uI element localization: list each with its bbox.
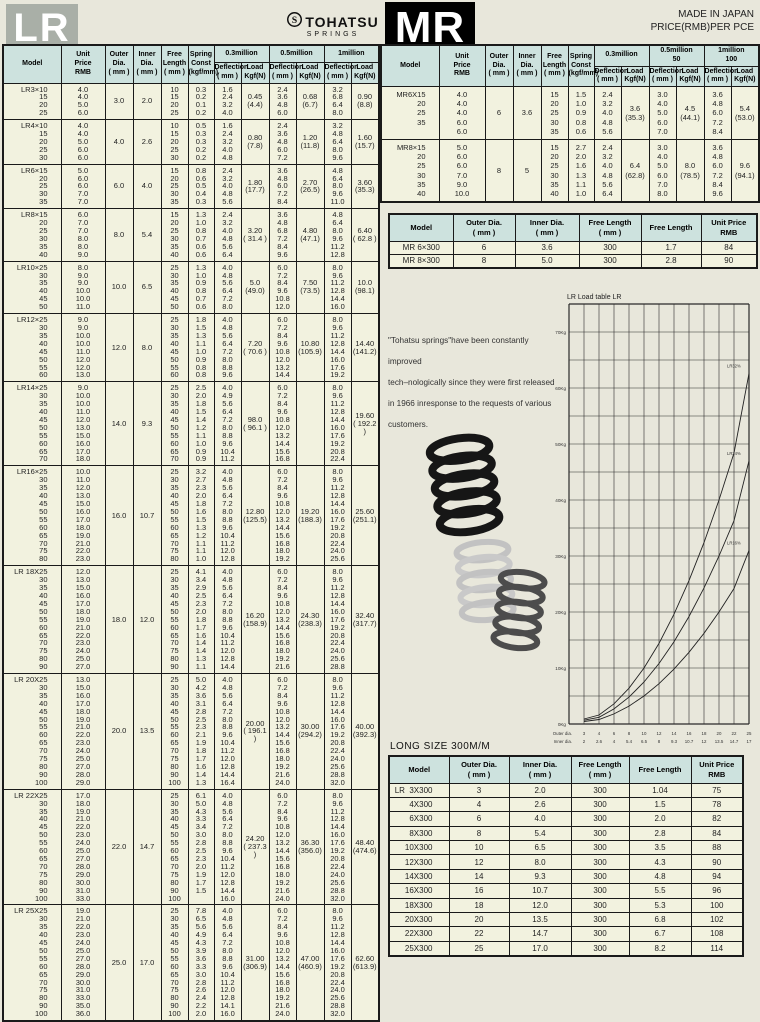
cell-price: 8.0 9.0 9.0 10.0 10.0 11.0 xyxy=(61,261,105,313)
x-tick-inner: 2 xyxy=(583,739,586,744)
col-header-model: Model xyxy=(3,45,61,83)
col-header-3: Free Length ( mm ) xyxy=(571,756,629,783)
spec-group-row: LR12×25 30 35 40 45 50 55 609.0 9.0 10.0… xyxy=(3,314,379,382)
x-tick-outer: 6 xyxy=(613,731,616,736)
y-tick-label: 10Kg xyxy=(555,666,566,671)
cell-price: 5.0 6.0 6.0 7.0 7.0 xyxy=(61,164,105,209)
cell-deflection-03: 4.0 4.8 5.6 6.4 7.2 8.0 xyxy=(214,261,241,313)
col-header-model: Model xyxy=(381,45,439,87)
cell-3: 300 xyxy=(571,884,629,898)
cell-4: 1.04 xyxy=(629,783,691,797)
x-tick-inner: 13.5 xyxy=(715,739,724,744)
table-row: MR 8×30085.03002.890 xyxy=(389,254,757,268)
cell-4: 6.8 xyxy=(629,912,691,926)
col-header-5: Unit Price RMB xyxy=(691,756,743,783)
cell-load-1: 25.60 (251.1) xyxy=(351,466,379,566)
cell-0: 10X300 xyxy=(389,841,449,855)
cell-load-05: 30.00 (294.2) xyxy=(296,674,324,790)
cell-load-1: 9.6 (94.1) xyxy=(731,140,759,203)
cell-deflection-05: 6.0 7.2 8.4 9.6 10.8 12.0 13.2 14.4 15.6… xyxy=(269,905,296,1021)
cell-price: 12.0 13.0 15.0 16.0 17.0 18.0 19.0 21.0 … xyxy=(61,566,105,674)
cycle-header-2: 1million 100 xyxy=(704,45,759,66)
col-header-deflection-1: Deflection ( mm ) xyxy=(649,66,676,87)
col-header-1: Outer Dia. ( mm ) xyxy=(453,214,515,241)
cell-deflection-1: 4.8 6.4 8.0 9.6 11.2 12.8 xyxy=(324,209,351,261)
cell-load-05: 8.0 (78.5) xyxy=(676,140,704,203)
cell-2: 6.5 xyxy=(509,841,571,855)
cell-5: 100 xyxy=(691,898,743,912)
cell-deflection-05: 6.0 7.2 8.4 9.6 10.8 12.0 13.2 14.4 15.6… xyxy=(269,382,296,466)
table-row: LR 3X30032.03001.0475 xyxy=(389,783,743,797)
cell-4: 5.5 xyxy=(629,884,691,898)
cell-0: 16X300 xyxy=(389,884,449,898)
x-tick-outer: 3 xyxy=(583,731,586,736)
spec-group-row: LR 18X25 30 35 40 45 50 55 60 65 70 75 8… xyxy=(3,566,379,674)
cell-1: 4 xyxy=(449,797,509,811)
cell-5: 114 xyxy=(691,941,743,956)
cell-free-length: 25 30 35 40 45 50 55 60 65 70 75 80 xyxy=(161,466,188,566)
cell-model: MR8×15 20 25 30 35 40 xyxy=(381,140,439,203)
x-tick-inner: 10.7 xyxy=(685,739,694,744)
col-header-outer-dia: Outer Dia. ( mm ) xyxy=(105,45,133,83)
cell-5: 88 xyxy=(691,841,743,855)
cycle-header-0: 0.3million xyxy=(594,45,649,66)
x-axis-row1-label: Outer dia. xyxy=(553,731,572,736)
cell-deflection-03: 2.4 3.2 4.0 4.8 5.6 xyxy=(594,87,621,140)
cell-deflection-05: 6.0 7.2 8.4 9.6 10.8 12.0 13.2 14.4 15.6… xyxy=(269,674,296,790)
cell-inner: 2.0 xyxy=(133,83,161,120)
cell-price: 9.0 10.0 10.0 11.0 12.0 13.0 15.0 16.0 1… xyxy=(61,382,105,466)
lr-spec-table: ModelUnit Price RMBOuter Dia. ( mm )Inne… xyxy=(2,44,380,1022)
cell-outer: 14.0 xyxy=(105,382,133,466)
cell-model: LR4×10 15 20 25 30 xyxy=(3,120,61,165)
cell-deflection-05: 2.4 3.6 4.8 6.0 xyxy=(269,83,296,120)
cell-price: 13.0 15.0 16.0 17.0 18.0 19.0 21.0 22.0 … xyxy=(61,674,105,790)
cell-4: 2.8 xyxy=(641,254,701,268)
cell-free-length: 25 30 35 40 45 50 55 60 65 70 75 80 90 1… xyxy=(161,789,188,905)
table-row: 18X3001812.03005.3100 xyxy=(389,898,743,912)
cell-load-1: 1.60 (15.7) xyxy=(351,120,379,165)
x-tick-outer: 22 xyxy=(732,731,737,736)
cell-inner: 14.7 xyxy=(133,789,161,905)
long-size-title: LONG SIZE 300M/M xyxy=(390,741,490,752)
cycle-header-2: 1million xyxy=(324,45,379,63)
cell-load-03: 0.45 (4.4) xyxy=(241,83,269,120)
cell-3: 300 xyxy=(571,927,629,941)
table-row: 12X300128.03004.390 xyxy=(389,855,743,869)
col-header-unit-price: Unit Price RMB xyxy=(61,45,105,83)
spec-group-row: MR6X15 20 25 354.0 4.0 4.0 6.0 6.063.615… xyxy=(381,87,759,140)
cell-deflection-03: 1.6 2.4 3.2 4.0 4.8 xyxy=(214,120,241,165)
cell-deflection-05: 6.0 7.2 8.4 9.6 10.8 12.0 xyxy=(269,261,296,313)
cell-load-03: 31.00 (306.9) xyxy=(241,905,269,1021)
cell-load-03: 3.6 (35.3) xyxy=(621,87,649,140)
cell-load-1: 14.40 (141.2) xyxy=(351,314,379,382)
cell-outer: 16.0 xyxy=(105,466,133,566)
cell-free-length: 15 20 25 30 35 xyxy=(161,164,188,209)
cell-load-1: 0.90 (8.8) xyxy=(351,83,379,120)
cell-free-length: 25 30 35 40 45 50 55 60 xyxy=(161,314,188,382)
cell-0: MR 6×300 xyxy=(389,241,453,254)
cell-load-1: 6.40 ( 62.8 ) xyxy=(351,209,379,261)
cell-load-03: 3.20 ( 31.4 ) xyxy=(241,209,269,261)
lr-load-chart: LR Load table LR0Kg10Kg20Kg30Kg40Kg50Kg6… xyxy=(543,290,760,765)
cell-model: LR16×25 30 35 40 45 50 55 60 65 70 75 80 xyxy=(3,466,61,566)
cell-spring-const: 0.8 0.6 0.5 0.4 0.3 xyxy=(188,164,214,209)
cell-inner: 4.0 xyxy=(133,164,161,209)
cell-model: LR6×15 20 25 30 35 xyxy=(3,164,61,209)
tohatsu-logo-icon: S xyxy=(287,12,302,32)
x-tick-outer: 14 xyxy=(672,731,677,736)
cell-2: 14.7 xyxy=(509,927,571,941)
mr-spec-table: ModelUnit Price RMBOuter Dia. ( mm )Inne… xyxy=(380,44,760,203)
x-tick-inner: 17 xyxy=(747,739,752,744)
cell-5: 90 xyxy=(701,254,757,268)
cell-1: 6 xyxy=(453,241,515,254)
x-tick-inner: 14.7 xyxy=(730,739,739,744)
cell-price: 4.0 4.0 5.0 6.0 6.0 xyxy=(61,120,105,165)
cell-2: 4.0 xyxy=(509,812,571,826)
cell-outer: 20.0 xyxy=(105,674,133,790)
cell-2: 8.0 xyxy=(509,855,571,869)
cell-price: 5.0 6.0 6.0 7.0 9.0 10.0 xyxy=(439,140,485,203)
col-header-3: Free Length ( mm ) xyxy=(579,214,641,241)
cell-free-length: 25 30 35 40 45 50 55 60 65 70 75 80 90 1… xyxy=(161,905,188,1021)
cell-4: 2.8 xyxy=(629,826,691,840)
cell-deflection-03: 2.4 3.2 4.0 4.8 5.6 6.4 xyxy=(214,209,241,261)
cell-4: 1.7 xyxy=(641,241,701,254)
table-row: 16X3001610.73005.596 xyxy=(389,884,743,898)
x-tick-outer: 18 xyxy=(702,731,707,736)
cell-deflection-03: 4.0 4.8 5.6 6.4 7.2 8.0 8.8 9.6 10.4 11.… xyxy=(214,905,241,1021)
cell-load-1: 5.4 (53.0) xyxy=(731,87,759,140)
tohatsu-logo: S TOHATSU SPRINGS xyxy=(283,12,383,38)
y-tick-label: 30Kg xyxy=(555,554,566,559)
cell-spring-const: 7.8 6.5 5.6 4.9 4.3 3.9 3.6 3.3 3.0 2.8 … xyxy=(188,905,214,1021)
cell-4: 5.3 xyxy=(629,898,691,912)
cell-price: 19.0 21.0 22.0 23.0 24.0 25.0 27.0 28.0 … xyxy=(61,905,105,1021)
cell-5: 82 xyxy=(691,812,743,826)
spec-group-row: MR8×15 20 25 30 35 405.0 6.0 6.0 7.0 9.0… xyxy=(381,140,759,203)
cell-spring-const: 1.3 1.0 0.8 0.7 0.6 0.6 xyxy=(188,209,214,261)
table-row: MR 6×30063.63001.784 xyxy=(389,241,757,254)
col-header-deflection-2: Deflection ( mm ) xyxy=(704,66,731,87)
cell-4: 4.8 xyxy=(629,869,691,883)
cell-1: 10 xyxy=(449,841,509,855)
cell-0: 6X300 xyxy=(389,812,449,826)
cell-2: 13.5 xyxy=(509,912,571,926)
cell-1: 8 xyxy=(453,254,515,268)
cell-deflection-1: 8.0 9.6 11.2 12.8 14.4 16.0 17.6 19.2 20… xyxy=(324,382,351,466)
cell-1: 25 xyxy=(449,941,509,956)
cell-free-length: 10 15 20 25 30 xyxy=(161,120,188,165)
table-row: 20X3002013.53006.8102 xyxy=(389,912,743,926)
cell-3: 300 xyxy=(571,898,629,912)
x-tick-inner: 5.4 xyxy=(626,739,633,744)
cell-inner: 5 xyxy=(513,140,541,203)
cell-load-03: 16.20 (158.9) xyxy=(241,566,269,674)
y-tick-label: 70Kg xyxy=(555,330,566,335)
spring-photo-medium xyxy=(493,570,546,651)
chart-title: LR Load table LR xyxy=(567,294,621,301)
cycle-header-0: 0.3million xyxy=(214,45,269,63)
cell-spring-const: 2.7 2.0 1.6 1.3 1.1 1.0 xyxy=(568,140,594,203)
cell-free-length: 25 30 35 40 45 50 55 60 65 70 xyxy=(161,382,188,466)
col-header-1: Outer Dia. ( mm ) xyxy=(449,756,509,783)
table-row: 6X30064.03002.082 xyxy=(389,812,743,826)
cell-inner: 9.3 xyxy=(133,382,161,466)
table-row: 8X30085.43002.884 xyxy=(389,826,743,840)
col-header-deflection-2: Deflection ( mm ) xyxy=(324,63,351,84)
col-header-free-length: Free Length ( mm ) xyxy=(541,45,568,87)
x-tick-outer: 10 xyxy=(642,731,647,736)
cell-3: 300 xyxy=(571,812,629,826)
x-tick-inner: 6.5 xyxy=(641,739,648,744)
cell-model: LR 22X25 30 35 40 45 50 55 60 65 70 75 8… xyxy=(3,789,61,905)
y-tick-label: 20Kg xyxy=(555,610,566,615)
cell-0: LR 3X300 xyxy=(389,783,449,797)
cell-2: 9.3 xyxy=(509,869,571,883)
x-tick-outer: 16 xyxy=(687,731,692,736)
spring-photos xyxy=(415,428,560,673)
series-label-1: LR24% xyxy=(727,451,741,456)
cell-2: 17.0 xyxy=(509,941,571,956)
cell-5: 94 xyxy=(691,869,743,883)
x-tick-outer: 8 xyxy=(628,731,631,736)
spec-group-row: LR 20X25 30 35 40 45 50 55 60 65 70 75 8… xyxy=(3,674,379,790)
x-tick-inner: 2.6 xyxy=(596,739,603,744)
cell-5: 96 xyxy=(691,884,743,898)
cell-3: 300 xyxy=(571,797,629,811)
spec-group-row: LR4×10 15 20 25 304.0 4.0 5.0 6.0 6.04.0… xyxy=(3,120,379,165)
cell-spring-const: 4.1 3.4 2.9 2.5 2.3 2.0 1.8 1.7 1.6 1.4 … xyxy=(188,566,214,674)
cell-deflection-05: 3.6 4.8 6.8 7.2 8.4 9.6 xyxy=(269,209,296,261)
cell-model: LR12×25 30 35 40 45 50 55 60 xyxy=(3,314,61,382)
cell-1: 8 xyxy=(449,826,509,840)
cell-spring-const: 6.1 5.0 4.3 3.3 3.4 3.0 2.8 2.5 2.3 2.0 … xyxy=(188,789,214,905)
cell-1: 6 xyxy=(449,812,509,826)
cell-load-05: 36.30 (356.0) xyxy=(296,789,324,905)
cell-0: 20X300 xyxy=(389,912,449,926)
cell-outer: 10.0 xyxy=(105,261,133,313)
cell-inner: 12.0 xyxy=(133,566,161,674)
cell-spring-const: 0.3 0.2 0.1 0.2 xyxy=(188,83,214,120)
brand-name: TOHATSU xyxy=(305,14,378,30)
cell-3: 300 xyxy=(571,826,629,840)
cell-inner: 10.7 xyxy=(133,466,161,566)
cell-load-1: 32.40 (317.7) xyxy=(351,566,379,674)
col-header-inner-dia: Inner Dia. ( mm ) xyxy=(133,45,161,83)
col-header-2: Inner Dia. ( mm ) xyxy=(515,214,579,241)
cell-0: 14X300 xyxy=(389,869,449,883)
cell-5: 108 xyxy=(691,927,743,941)
col-header-0: Model xyxy=(389,214,453,241)
cell-inner: 5.4 xyxy=(133,209,161,261)
col-header-deflection-1: Deflection ( mm ) xyxy=(269,63,296,84)
cell-price: 9.0 9.0 10.0 10.0 11.0 12.0 12.0 13.0 xyxy=(61,314,105,382)
cell-load-03: 98.0 ( 96.1 ) xyxy=(241,382,269,466)
table-row: 10X300106.53003.588 xyxy=(389,841,743,855)
cell-inner: 8.0 xyxy=(133,314,161,382)
cell-4: 2.0 xyxy=(629,812,691,826)
cell-2: 12.0 xyxy=(509,898,571,912)
cell-load-05: 1.20 (11.8) xyxy=(296,120,324,165)
cell-deflection-1: 3.2 6.8 6.4 8.0 xyxy=(324,83,351,120)
cell-deflection-03: 4.0 4.9 5.6 6.4 7.2 8.0 8.8 9.6 10.4 11.… xyxy=(214,382,241,466)
cell-2: 2.6 xyxy=(509,797,571,811)
cell-price: 6.0 7.0 7.0 8.0 8.0 9.0 xyxy=(61,209,105,261)
cell-load-05: 7.50 (73.5) xyxy=(296,261,324,313)
cell-load-05: 47.00 (460.9) xyxy=(296,905,324,1021)
cell-0: 25X300 xyxy=(389,941,449,956)
cell-load-05: 4.5 (44.1) xyxy=(676,87,704,140)
cell-0: 22X300 xyxy=(389,927,449,941)
cell-model: MR6X15 20 25 35 xyxy=(381,87,439,140)
load-chart-svg: LR Load table LR0Kg10Kg20Kg30Kg40Kg50Kg6… xyxy=(543,290,760,760)
spec-group-row: LR16×25 30 35 40 45 50 55 60 65 70 75 80… xyxy=(3,466,379,566)
cell-0: MR 8×300 xyxy=(389,254,453,268)
cell-price: 10.0 11.0 12.0 13.0 15.0 16.0 17.0 18.0 … xyxy=(61,466,105,566)
cell-deflection-03: 4.0 4.8 5.6 6.4 7.2 8.0 8.8 9.6 10.4 11.… xyxy=(214,789,241,905)
cell-inner: 17.0 xyxy=(133,905,161,1021)
cell-spring-const: 1.5 1.0 0.9 0.8 0.6 xyxy=(568,87,594,140)
cell-outer: 8 xyxy=(485,140,513,203)
cell-deflection-03: 1.6 2.4 3.2 4.0 xyxy=(214,83,241,120)
cell-2: 3.6 xyxy=(515,241,579,254)
x-tick-outer: 12 xyxy=(657,731,662,736)
cell-model: LR3×10 15 20 25 xyxy=(3,83,61,120)
x-tick-inner: 4 xyxy=(613,739,616,744)
x-axis-row2-label: Inner dia. xyxy=(554,739,572,744)
cell-outer: 6 xyxy=(485,87,513,140)
x-tick-inner: 8 xyxy=(658,739,661,744)
cell-outer: 3.0 xyxy=(105,83,133,120)
cell-model: LR14×25 30 35 40 45 50 55 60 65 70 xyxy=(3,382,61,466)
cell-2: 2.0 xyxy=(509,783,571,797)
spec-group-row: LR 22X25 30 35 40 45 50 55 60 65 70 75 8… xyxy=(3,789,379,905)
cell-load-1: 19.60 ( 192.2 ) xyxy=(351,382,379,466)
cell-deflection-1: 8.0 9.6 11.2 12.8 14.4 16.0 17.6 19.2 20… xyxy=(324,466,351,566)
cell-5: 84 xyxy=(701,241,757,254)
cell-deflection-03: 4.0 4.8 5.6 6.4 7.2 8.0 8.8 9.6 10.4 11.… xyxy=(214,566,241,674)
cell-deflection-05: 6.0 7.2 8.4 9.6 10.8 12.0 13.2 14.4 15.6… xyxy=(269,466,296,566)
cell-5: 78 xyxy=(691,797,743,811)
cell-1: 22 xyxy=(449,927,509,941)
spec-group-row: LR14×25 30 35 40 45 50 55 60 65 709.0 10… xyxy=(3,382,379,466)
cell-3: 300 xyxy=(571,912,629,926)
cell-1: 16 xyxy=(449,884,509,898)
cell-free-length: 25 30 35 40 45 50 55 60 65 70 75 80 90 1… xyxy=(161,674,188,790)
cell-outer: 18.0 xyxy=(105,566,133,674)
cell-load-03: 5.0 (49.0) xyxy=(241,261,269,313)
y-tick-label: 50Kg xyxy=(555,442,566,447)
cell-load-1: 48.40 (474.6) xyxy=(351,789,379,905)
cycle-header-1: 0.5million 50 xyxy=(649,45,704,66)
cell-outer: 12.0 xyxy=(105,314,133,382)
col-header-4: Free Length xyxy=(629,756,691,783)
col-header-free-length: Free Length ( mm ) xyxy=(161,45,188,83)
cell-deflection-05: 3.0 4.0 5.0 6.0 7.0 xyxy=(649,87,676,140)
cell-outer: 8.0 xyxy=(105,209,133,261)
x-tick-outer: 20 xyxy=(717,731,722,736)
cell-deflection-05: 2.4 3.6 4.8 6.0 7.2 xyxy=(269,120,296,165)
cell-free-length: 25 30 35 40 45 50 55 60 65 70 75 80 90 xyxy=(161,566,188,674)
cell-load-03: 1.80 (17.7) xyxy=(241,164,269,209)
cell-3: 300 xyxy=(571,855,629,869)
cell-load-03: 20.00 ( 196.1 ) xyxy=(241,674,269,790)
cell-model: LR8×15 20 25 30 35 40 xyxy=(3,209,61,261)
cell-inner: 2.6 xyxy=(133,120,161,165)
cell-4: 8.2 xyxy=(629,941,691,956)
cell-deflection-1: 8.0 9.6 11.2 12.8 14.4 16.0 xyxy=(324,261,351,313)
cell-deflection-03: 4.0 4.8 5.6 6.4 7.2 8.0 8.8 9.6 xyxy=(214,314,241,382)
cell-inner: 3.6 xyxy=(513,87,541,140)
cell-4: 3.5 xyxy=(629,841,691,855)
cell-0: 4X300 xyxy=(389,797,449,811)
cell-outer: 25.0 xyxy=(105,905,133,1021)
cell-spring-const: 0.5 0.3 0.3 0.2 0.2 xyxy=(188,120,214,165)
cell-spring-const: 2.5 2.0 1.8 1.5 1.4 1.2 1.1 1.0 0.9 0.9 xyxy=(188,382,214,466)
x-tick-inner: 9.3 xyxy=(671,739,678,744)
cell-free-length: 15 20 25 30 35 40 xyxy=(161,209,188,261)
col-header-0: Model xyxy=(389,756,449,783)
cell-deflection-1: 8.0 9.6 11.2 12.8 14.4 16.0 17.6 19.2 xyxy=(324,314,351,382)
spec-group-row: LR6×15 20 25 30 355.0 6.0 6.0 7.0 7.06.0… xyxy=(3,164,379,209)
cell-load-03: 6.4 (62.8) xyxy=(621,140,649,203)
cell-free-length: 25 30 35 40 45 50 xyxy=(161,261,188,313)
svg-text:S: S xyxy=(292,15,298,26)
series-label-0: LR32% xyxy=(727,363,741,368)
mr-300-table: ModelOuter Dia. ( mm )Inner Dia. ( mm )F… xyxy=(388,213,758,269)
cell-outer: 4.0 xyxy=(105,120,133,165)
cell-inner: 13.5 xyxy=(133,674,161,790)
series-label-2: LR16% xyxy=(727,540,741,545)
cell-load-1: 62.60 (613.9) xyxy=(351,905,379,1021)
col-header-unit-price: Unit Price RMB xyxy=(439,45,485,87)
cell-3: 300 xyxy=(571,941,629,956)
cell-model: LR 18X25 30 35 40 45 50 55 60 65 70 75 8… xyxy=(3,566,61,674)
long-size-table: ModelOuter Dia. ( mm )Inner Dia. ( mm )F… xyxy=(388,755,744,957)
col-header-5: Unit Price RMB xyxy=(701,214,757,241)
cell-3: 300 xyxy=(571,869,629,883)
y-tick-label: 60Kg xyxy=(555,386,566,391)
cell-load-05: 10.80 (105.9) xyxy=(296,314,324,382)
table-row: 25X3002517.03008.2114 xyxy=(389,941,743,956)
table-row: 22X3002214.73006.7108 xyxy=(389,927,743,941)
cell-spring-const: 3.2 2.7 2.3 2.0 1.8 1.6 1.5 1.3 1.2 1.1 … xyxy=(188,466,214,566)
cell-5: 84 xyxy=(691,826,743,840)
cell-deflection-1: 3.6 4.8 6.0 7.2 8.4 9.6 xyxy=(704,140,731,203)
cell-deflection-1: 3.2 4.8 6.4 8.0 9.6 xyxy=(324,120,351,165)
cell-deflection-03: 4.0 4.8 5.6 6.4 7.2 8.0 8.8 9.6 10.4 11.… xyxy=(214,466,241,566)
cell-deflection-03: 4.0 4.8 5.6 6.4 7.2 8.0 8.8 9.6 10.4 11.… xyxy=(214,674,241,790)
col-header-deflection-0: Deflection ( mm ) xyxy=(594,66,621,87)
cell-4: 1.5 xyxy=(629,797,691,811)
cell-load-03: 12.80 (125.5) xyxy=(241,466,269,566)
cell-load-05: 19.20 (188.3) xyxy=(296,466,324,566)
cell-price: 4.0 4.0 5.0 6.0 xyxy=(61,83,105,120)
cell-load-05: 4.80 (47.1) xyxy=(296,209,324,261)
cell-price: 4.0 4.0 4.0 6.0 6.0 xyxy=(439,87,485,140)
spec-group-row: LR 25X25 30 35 40 45 50 55 60 65 70 75 8… xyxy=(3,905,379,1021)
cell-0: 18X300 xyxy=(389,898,449,912)
cell-2: 5.4 xyxy=(509,826,571,840)
cell-1: 20 xyxy=(449,912,509,926)
cell-deflection-03: 2.4 3.2 4.0 4.8 5.6 6.4 xyxy=(594,140,621,203)
cell-5: 102 xyxy=(691,912,743,926)
cell-4: 4.3 xyxy=(629,855,691,869)
cell-spring-const: 1.3 1.0 0.9 0.8 0.7 0.6 xyxy=(188,261,214,313)
